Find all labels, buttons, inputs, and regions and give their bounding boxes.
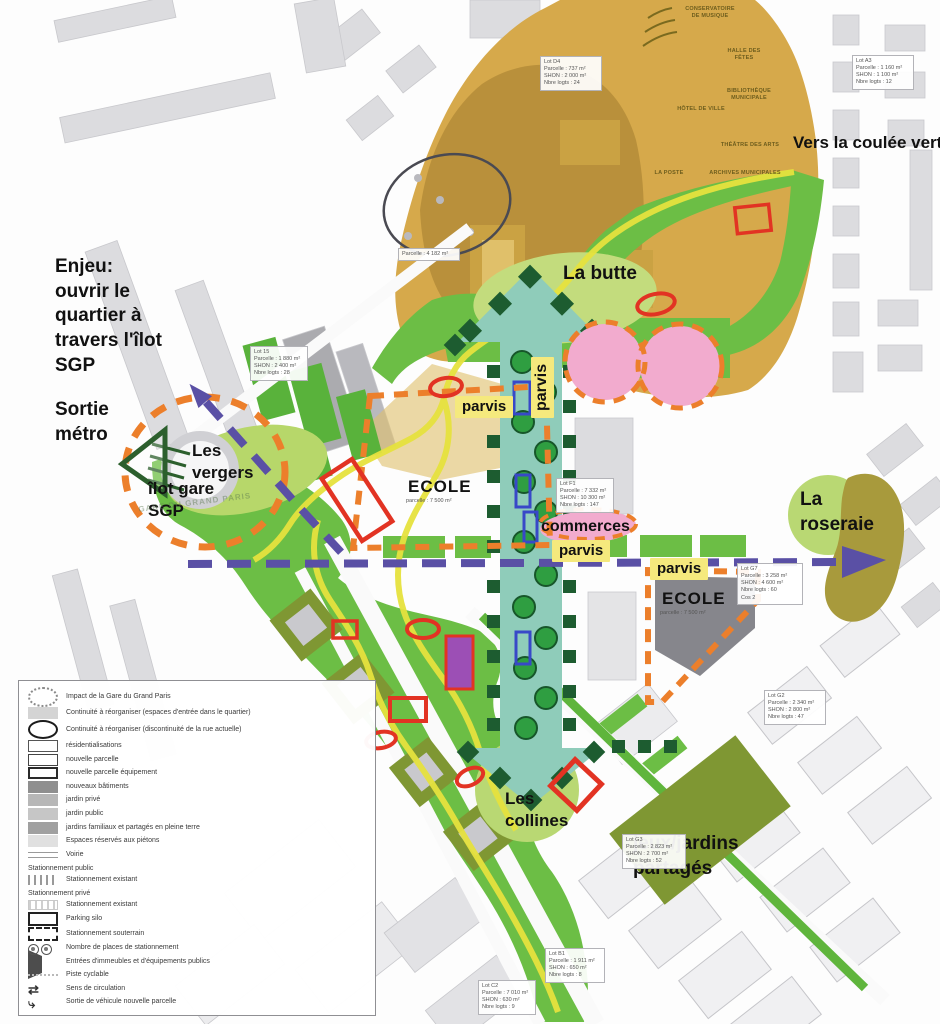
voirie-swatch — [28, 852, 58, 858]
continuite-swatch — [28, 707, 58, 719]
parcel-box: Lot G2 Parcelle : 2 340 m² SHON : 2 800 … — [764, 690, 826, 725]
legend-item: Piste cyclable — [28, 970, 366, 981]
label-bibliotheque: Bibliothèque municipale — [716, 88, 782, 102]
impact-gare-swatch — [28, 687, 58, 707]
legend-item: jardin privé — [28, 795, 366, 806]
nouvelle-parcelle-swatch — [28, 754, 58, 766]
urban-plan-map: Vers la coulée verte Enjeu: ouvrir le qu… — [0, 0, 940, 1024]
legend-item: ⤷Sortie de véhicule nouvelle parcelle — [28, 997, 366, 1008]
legend-item: Voirie — [28, 849, 366, 860]
legend-item: Stationnement existant — [28, 874, 366, 885]
legend-header-prive: Stationnement privé — [28, 890, 366, 897]
stationnement-public-swatch — [28, 875, 58, 885]
espaces-pietons-swatch — [28, 835, 58, 847]
label-parvis-vertical: parvis — [531, 357, 554, 418]
label-ecole-east-parcelle: parcelle : 7 500 m² — [660, 610, 706, 616]
parking-silo-swatch — [28, 912, 58, 926]
label-ecole-west: ECOLE — [408, 476, 472, 498]
entrees-immeubles-icon — [28, 956, 58, 968]
legend-item: jardin public — [28, 808, 366, 819]
legend-panel: Impact de la Gare du Grand Paris Continu… — [18, 680, 376, 1016]
label-commerces: commerces — [541, 517, 630, 538]
stationnement-souterrain-swatch — [28, 927, 58, 941]
nouveaux-batiments-swatch — [28, 781, 58, 793]
parcel-box: Lot C2 Parcelle : 7 010 m² SHON : 630 m²… — [478, 980, 536, 1015]
parcel-box: Lot G7 Parcelle : 3 258 m² SHON : 4 600 … — [737, 563, 803, 605]
label-ecole-west-parcelle: parcelle : 7 500 m² — [406, 498, 452, 504]
label-sortie-metro: Sortie métro — [55, 398, 109, 447]
parcel-box: Lot B1 Parcelle : 1 911 m² SHON : 650 m²… — [545, 948, 605, 983]
label-hotel-de-ville: Hôtel de ville — [668, 106, 734, 113]
legend-item: Parking silo — [28, 913, 366, 925]
parcel-box: Lot F1 Parcelle : 7 332 m² SHON : 10 300… — [556, 478, 614, 513]
legend-item: Espaces réservés aux piétons — [28, 836, 366, 847]
label-archives: Archives municipales — [700, 170, 790, 177]
parcel-box: Parcelle : 4 182 m² — [398, 248, 460, 261]
label-la-roseraie: La roseraie — [800, 488, 874, 537]
label-halle-des-fetes: Halle des fêtes — [716, 48, 772, 62]
parcelle-equipement-swatch — [28, 767, 58, 779]
jardin-prive-swatch — [28, 794, 58, 806]
parcel-box: Lot G3 Parcelle : 2 823 m² SHON : 2 700 … — [622, 834, 686, 869]
legend-item: Entrées d'immeubles et d'équipements pub… — [28, 956, 366, 967]
legend-item: Impact de la Gare du Grand Paris — [28, 688, 366, 705]
legend-header-public: Stationnement public — [28, 865, 366, 872]
legend-item: nouvelle parcelle équipement — [28, 768, 366, 779]
label-la-butte: La butte — [563, 262, 637, 287]
label-les-collines: Les collines — [505, 788, 568, 832]
legend-item: Continuité à réorganiser (espaces d'entr… — [28, 708, 366, 719]
legend-item: nouvelle parcelle — [28, 754, 366, 765]
continuite-ellipse-swatch — [28, 720, 58, 739]
label-ecole-east: ECOLE — [662, 588, 726, 610]
label-vers-coulee-verte: Vers la coulée verte — [793, 132, 940, 154]
purple-equipment-block — [446, 636, 473, 689]
label-enjeu: Enjeu: ouvrir le quartier à travers l'îl… — [55, 255, 162, 378]
label-conservatoire: Conservatoire de musique — [672, 6, 748, 20]
parcel-box: Lot 15 Parcelle : 1 880 m² SHON : 2 400 … — [250, 346, 308, 381]
legend-item: Stationnement existant — [28, 900, 366, 911]
label-theatre: Théâtre des arts — [712, 142, 788, 149]
label-parvis-commerces: parvis — [552, 540, 610, 562]
legend-item: jardins familiaux et partagés en pleine … — [28, 822, 366, 833]
sortie-vehicule-icon: ⤷ — [28, 997, 58, 1009]
label-poste: La poste — [648, 170, 690, 177]
legend-item: Nombre de places de stationnement — [28, 943, 366, 954]
legend-item: Continuité à réorganiser (discontinuité … — [28, 721, 366, 737]
legend-item: ⇄Sens de circulation — [28, 983, 366, 994]
legend-item: nouveaux bâtiments — [28, 781, 366, 792]
piste-cyclable-swatch — [28, 974, 58, 976]
legend-item: Stationnement souterrain — [28, 928, 366, 940]
stationnement-prive-swatch — [28, 900, 58, 910]
residentialisation-swatch — [28, 740, 58, 752]
jardin-public-swatch — [28, 808, 58, 820]
jardins-familiaux-swatch — [28, 822, 58, 834]
parcel-box: Lot D4 Parcelle : 737 m² SHON : 2 000 m²… — [540, 56, 602, 91]
label-parvis-east: parvis — [650, 558, 708, 580]
sens-circulation-icon: ⇄ — [28, 983, 58, 995]
places-stationnement-icon — [28, 942, 58, 954]
legend-item: résidentialisations — [28, 741, 366, 752]
label-parvis-west: parvis — [455, 396, 513, 418]
parcel-box: Lot A3 Parcelle : 1 160 m² SHON : 1 100 … — [852, 55, 914, 90]
